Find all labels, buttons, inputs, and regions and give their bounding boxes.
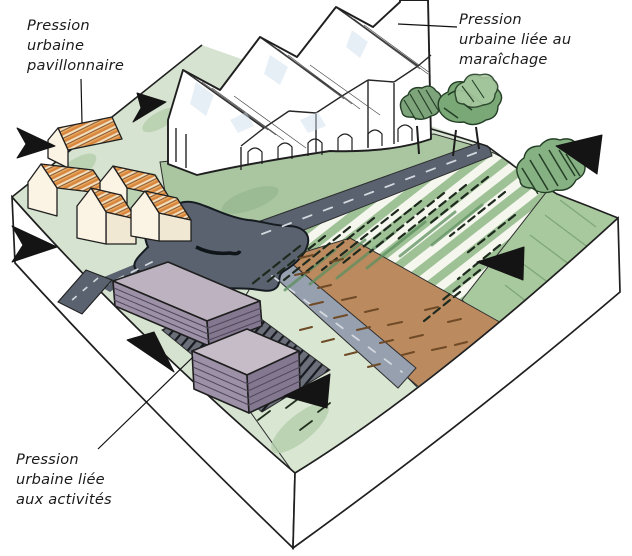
bush-top: [455, 74, 498, 107]
label-pression-activites: Pression urbaine liée aux activités: [16, 450, 166, 510]
label-pression-maraichage: Pression urbaine liée au maraîchage: [459, 10, 629, 70]
greenhouse: [168, 0, 431, 175]
diagram-canvas: Pression urbaine pavillonnaire Pression …: [0, 0, 632, 556]
label-pression-pavillonnaire: Pression urbaine pavillonnaire: [27, 16, 177, 76]
leader-line-pavillonnaire: [81, 79, 82, 123]
